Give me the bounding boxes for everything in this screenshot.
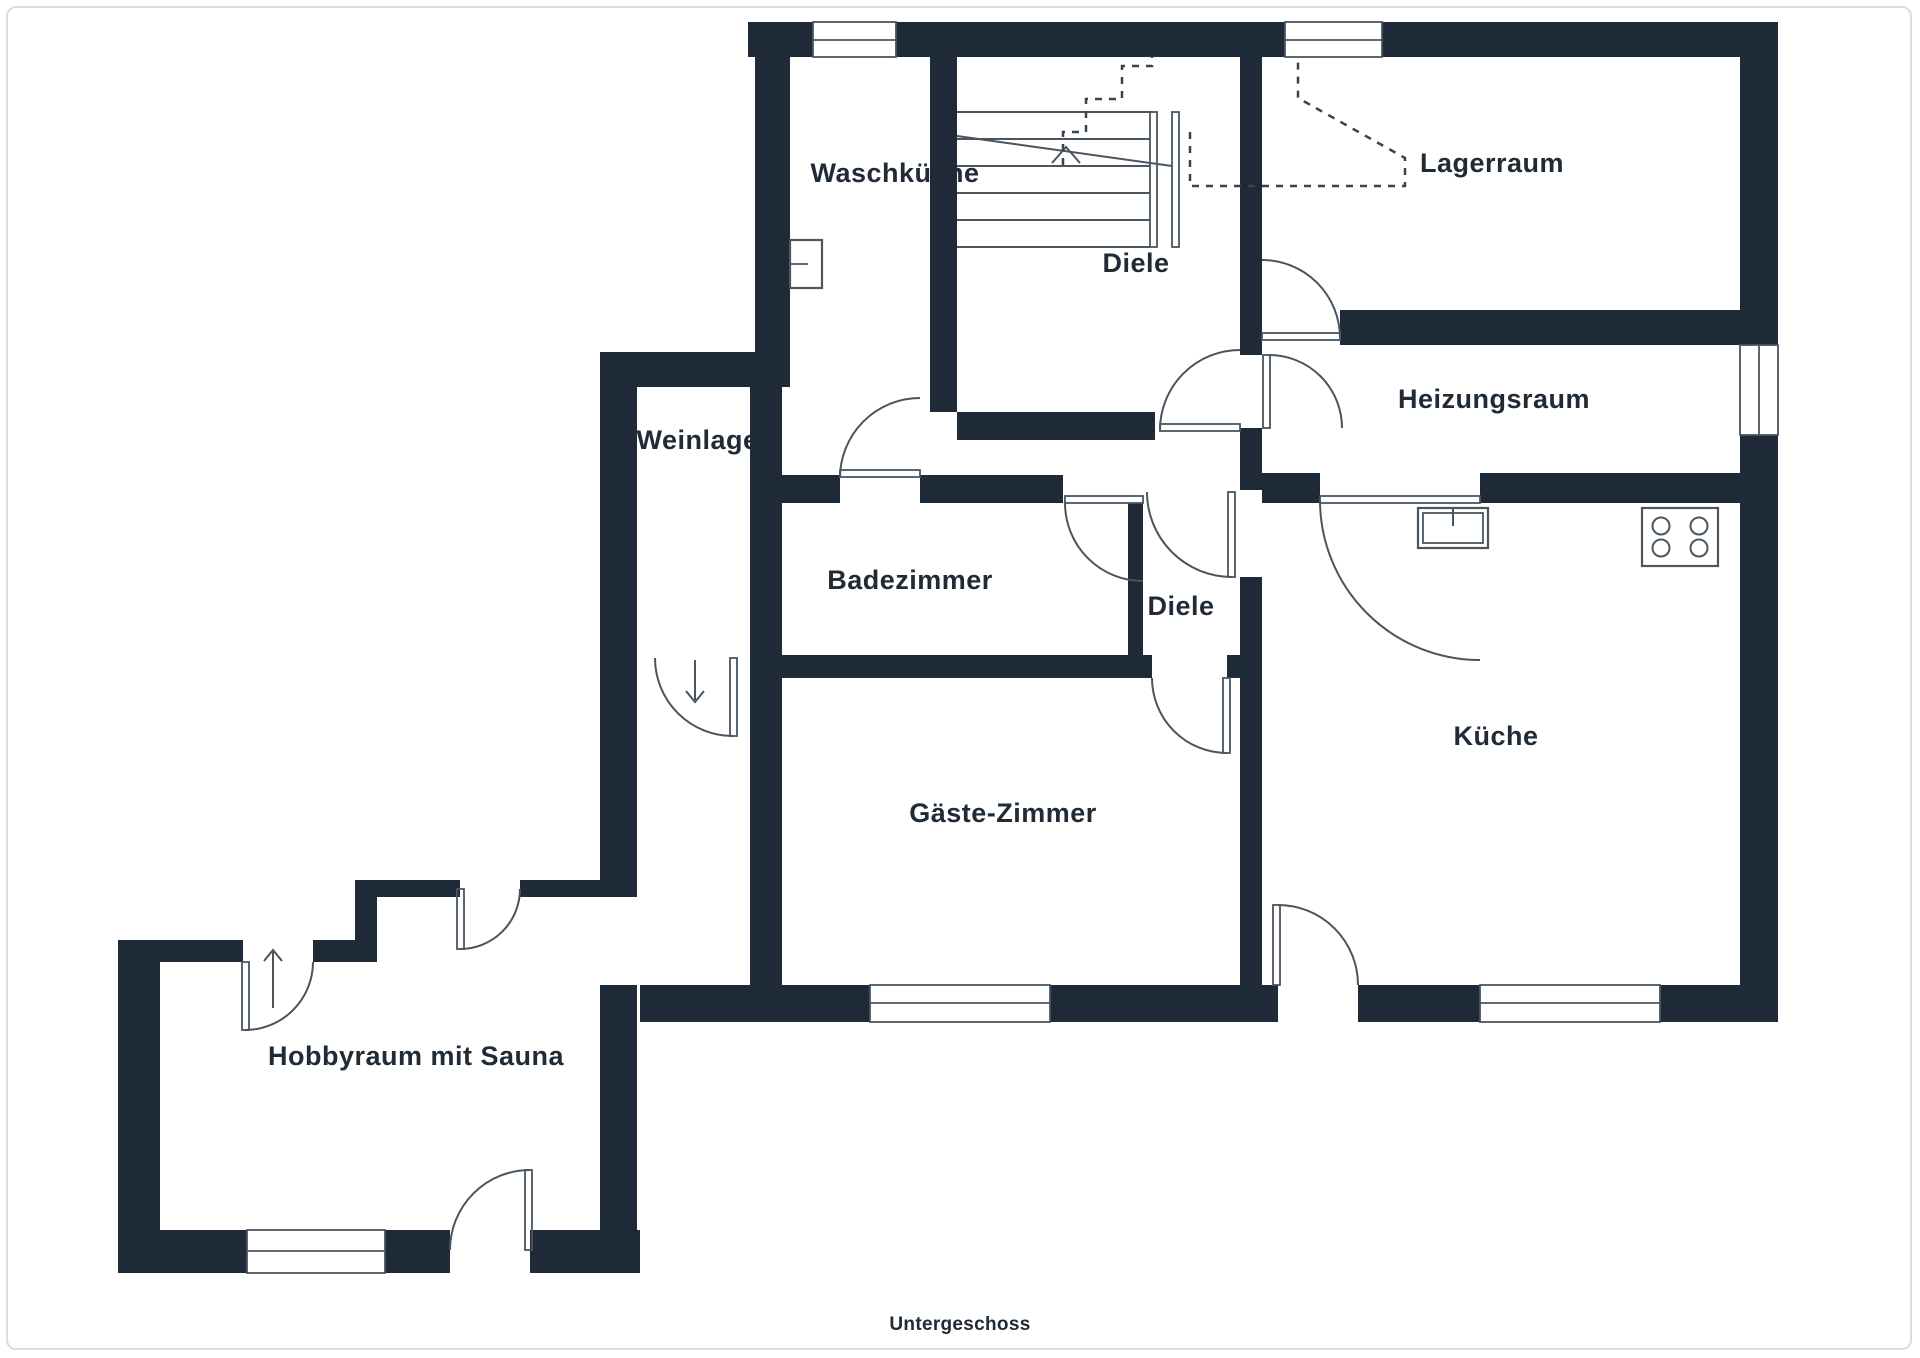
door-arc-hobbyraum-entrance	[242, 962, 313, 1030]
stairs-icon	[957, 112, 1179, 247]
door-arc-lagerraum	[1262, 260, 1340, 340]
window-gaeste-bottom	[870, 985, 1050, 1022]
window-hobbyraum-bottom	[247, 1230, 385, 1273]
door-arc-gaeste-zimmer	[1152, 678, 1230, 753]
door-arc-heizungsraum	[1263, 355, 1342, 428]
dashed-stair-path-right	[1190, 57, 1405, 186]
room-label-gaeste-zimmer: Gäste-Zimmer	[909, 798, 1097, 828]
room-label-kueche: Küche	[1453, 721, 1538, 751]
doors	[242, 260, 1480, 1250]
room-label-badezimmer: Badezimmer	[827, 565, 993, 595]
windows	[247, 22, 1778, 1273]
window-waschkueche-top	[813, 22, 896, 57]
door-arc-waschkueche	[840, 398, 920, 478]
room-label-waschkueche: Waschküche	[810, 158, 979, 188]
hobbyraum-exterior-door-gap	[450, 1230, 530, 1273]
walls	[118, 22, 1778, 1273]
door-arc-diele-hall	[1160, 350, 1240, 431]
laundry-sink-icon	[790, 240, 822, 288]
floor-plan-page: Waschküche Diele Lagerraum Heizungsraum …	[0, 0, 1920, 1358]
entrance-arrow-down-icon	[686, 660, 704, 702]
floor-caption: Untergeschoss	[889, 1314, 1030, 1335]
door-arc-corridor-hobbyraum	[457, 889, 520, 949]
window-kueche-bottom	[1480, 985, 1660, 1022]
door-arc-kueche-exterior	[1273, 905, 1358, 985]
room-label-diele-upper: Diele	[1102, 248, 1169, 278]
room-label-heizungsraum: Heizungsraum	[1398, 384, 1590, 414]
floor-plan: Waschküche Diele Lagerraum Heizungsraum …	[0, 0, 1920, 1358]
window-heizungsraum-right	[1740, 345, 1778, 435]
kueche-exterior-door-gap	[1278, 985, 1358, 1022]
kitchen-sink-icon	[1418, 508, 1488, 548]
room-label-lagerraum: Lagerraum	[1420, 148, 1564, 178]
entrance-arrow-up-icon	[264, 950, 282, 1008]
stove-icon	[1642, 508, 1718, 566]
room-label-hobbyraum: Hobbyraum mit Sauna	[268, 1041, 565, 1071]
room-label-diele-lower: Diele	[1147, 591, 1214, 621]
door-arc-kueche-from-diele	[1147, 492, 1235, 577]
room-label-weinlager: Weinlager	[636, 425, 769, 455]
window-lagerraum-top	[1285, 22, 1382, 57]
